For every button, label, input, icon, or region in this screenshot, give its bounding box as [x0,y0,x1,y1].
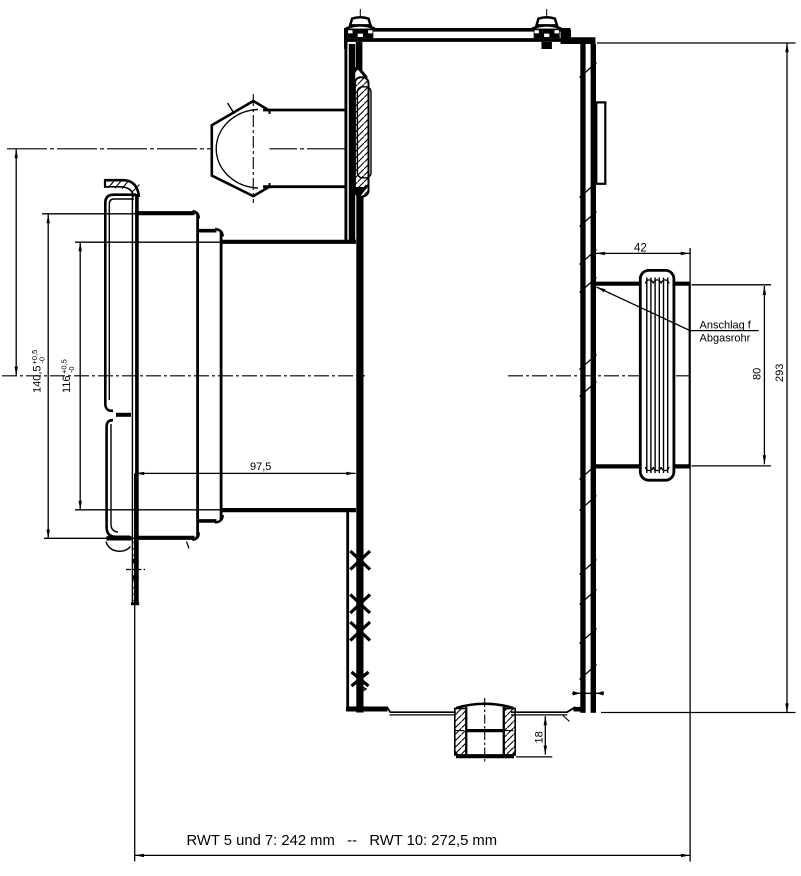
svg-text:Anschlag f: Anschlag f [700,320,752,332]
svg-text:18: 18 [533,731,545,743]
svg-text:Abgasrohr: Abgasrohr [700,333,751,345]
svg-text:293: 293 [774,364,786,382]
svg-text:RWT 5 und 7: 242 mm -- RWT: RWT 5 und 7: 242 mm -- RWT 10: 272,5 mm [187,833,498,849]
svg-text:80: 80 [751,368,763,380]
svg-text:42: 42 [634,243,647,255]
svg-text:97,5: 97,5 [250,461,271,473]
